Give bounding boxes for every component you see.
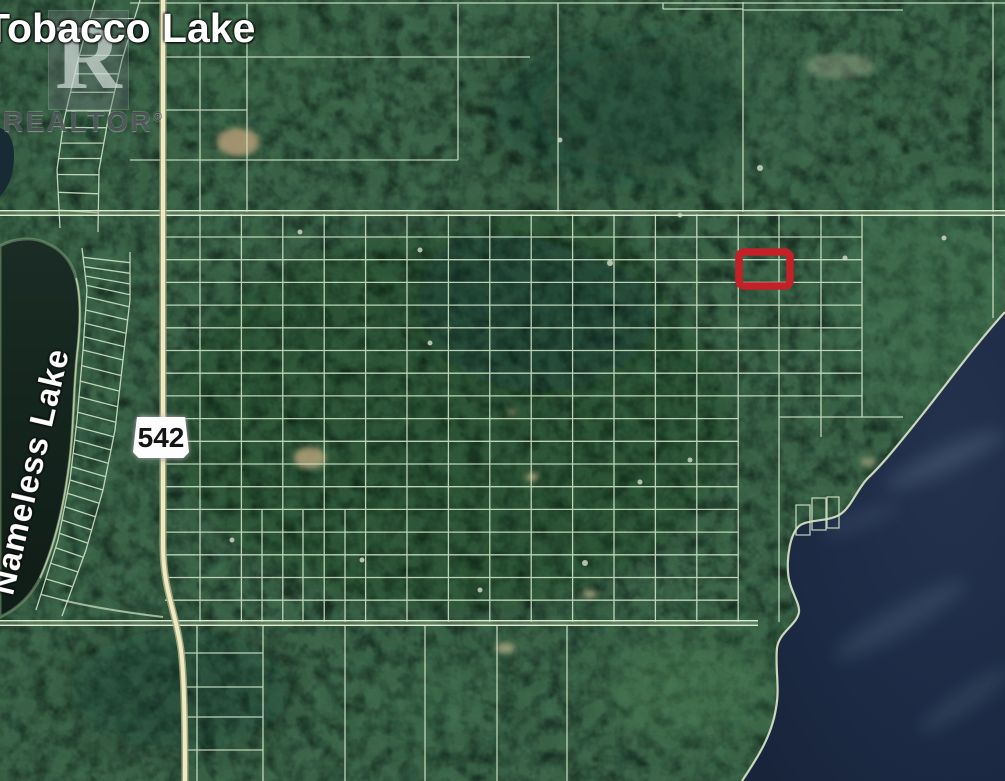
satellite-map[interactable]: R REALTOR® Tobacco Lake Nameless Lake 54…	[0, 0, 1005, 781]
highway-542-shield: 542	[133, 417, 189, 458]
concession-road-lower	[0, 621, 758, 626]
concession-road-upper	[0, 211, 1005, 216]
highway-shield-number: 542	[133, 417, 189, 458]
map-canvas	[0, 0, 1005, 781]
